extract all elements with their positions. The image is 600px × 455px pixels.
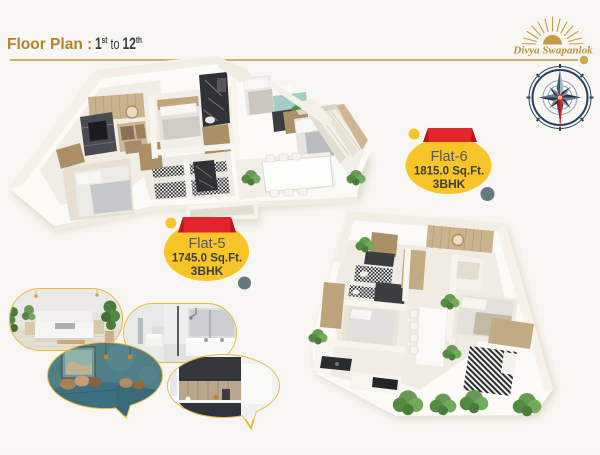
svg-text:Flat-5: Flat-5 bbox=[188, 236, 225, 252]
svg-text:Flat-6: Flat-6 bbox=[430, 149, 467, 165]
svg-text:1815.0 Sq.Ft.: 1815.0 Sq.Ft. bbox=[414, 166, 484, 178]
svg-text:3BHK: 3BHK bbox=[433, 177, 466, 191]
svg-text:3BHK: 3BHK bbox=[191, 264, 224, 278]
svg-text:Divya Swapanlok: Divya Swapanlok bbox=[512, 45, 593, 57]
svg-text:1745.0 Sq.Ft.: 1745.0 Sq.Ft. bbox=[172, 253, 242, 265]
svg-text:Floor Plan :: Floor Plan : bbox=[7, 36, 92, 53]
